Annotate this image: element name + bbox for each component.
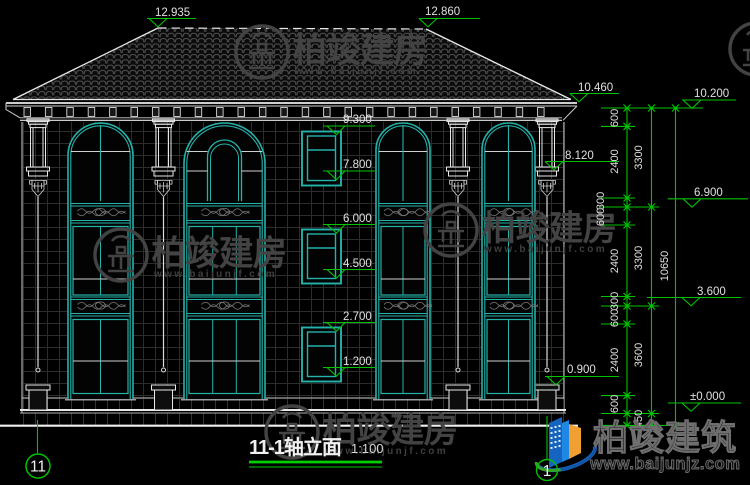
svg-text:柏竣建房: 柏竣建房 [293,31,428,70]
svg-text:0.900: 0.900 [567,364,596,376]
svg-text:300: 300 [595,192,607,210]
svg-text:600: 600 [609,109,621,127]
svg-text:www.baijunjf.com: www.baijunjf.com [153,269,277,280]
svg-text:2.700: 2.700 [343,311,372,323]
svg-text:600: 600 [595,208,607,226]
svg-text:柏竣建筑: 柏竣建筑 [593,418,737,458]
svg-text:3.600: 3.600 [697,286,726,298]
svg-text:2400: 2400 [609,149,621,173]
svg-text:11-1轴立面: 11-1轴立面 [249,435,342,459]
svg-text:www.baijunjz.com: www.baijunjz.com [589,455,740,473]
svg-text:2400: 2400 [609,348,621,372]
svg-text:12.860: 12.860 [425,6,460,18]
svg-text:±0.000: ±0.000 [690,391,725,403]
svg-text:8.120: 8.120 [565,150,594,162]
svg-text:10.460: 10.460 [578,82,613,94]
svg-text:12.935: 12.935 [155,7,190,19]
svg-text:www.baijunjf.com: www.baijunjf.com [294,66,418,77]
svg-text:11: 11 [30,459,46,476]
svg-text:1: 1 [543,463,552,480]
svg-text:10.200: 10.200 [694,88,729,100]
svg-text:2400: 2400 [609,249,621,273]
svg-text:柏竣建房: 柏竣建房 [152,234,287,273]
svg-text:6.000: 6.000 [343,213,372,225]
svg-text:9.300: 9.300 [343,114,372,126]
svg-text:10650: 10650 [659,251,671,282]
svg-text:6.900: 6.900 [694,187,723,199]
svg-text:3300: 3300 [633,246,645,270]
svg-text:1.200: 1.200 [343,356,372,368]
svg-text:600: 600 [609,395,621,413]
svg-text:600: 600 [609,309,621,327]
svg-text:3300: 3300 [633,145,645,169]
svg-text:7.800: 7.800 [343,159,372,171]
svg-text:www.baijunjf.com: www.baijunjf.com [324,446,448,457]
svg-text:1:100: 1:100 [351,441,384,456]
svg-text:4.500: 4.500 [343,258,372,270]
svg-text:www.baijunjf.com: www.baijunjf.com [483,244,607,255]
svg-text:柏竣建房: 柏竣建房 [323,411,458,450]
svg-text:300: 300 [609,292,621,310]
svg-text:3600: 3600 [633,343,645,367]
